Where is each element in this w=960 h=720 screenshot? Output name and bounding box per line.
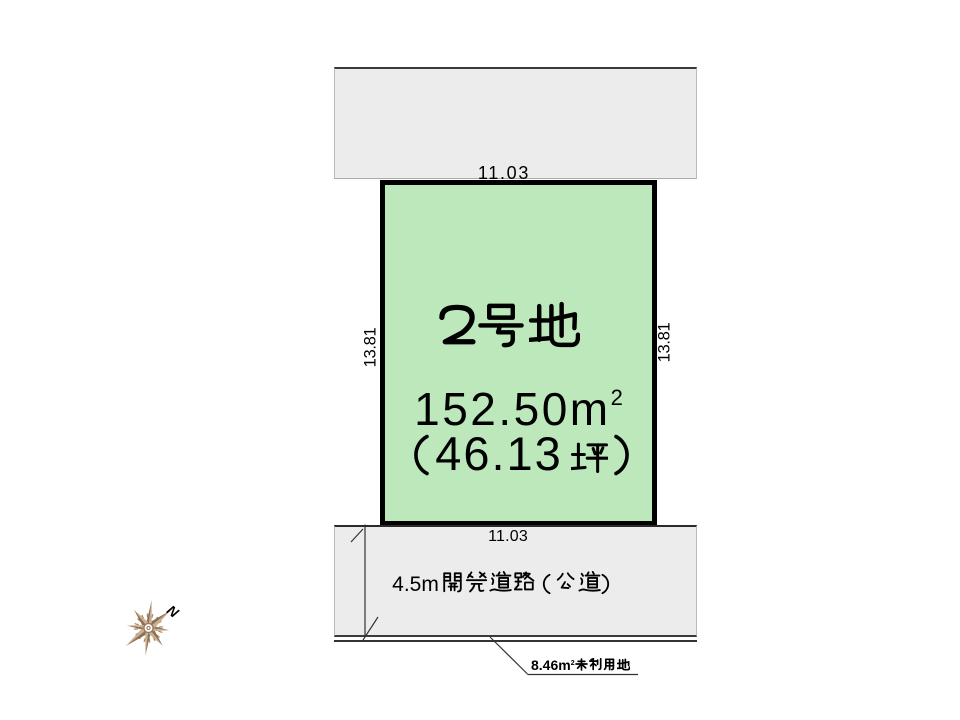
svg-text:N: N — [164, 602, 183, 621]
